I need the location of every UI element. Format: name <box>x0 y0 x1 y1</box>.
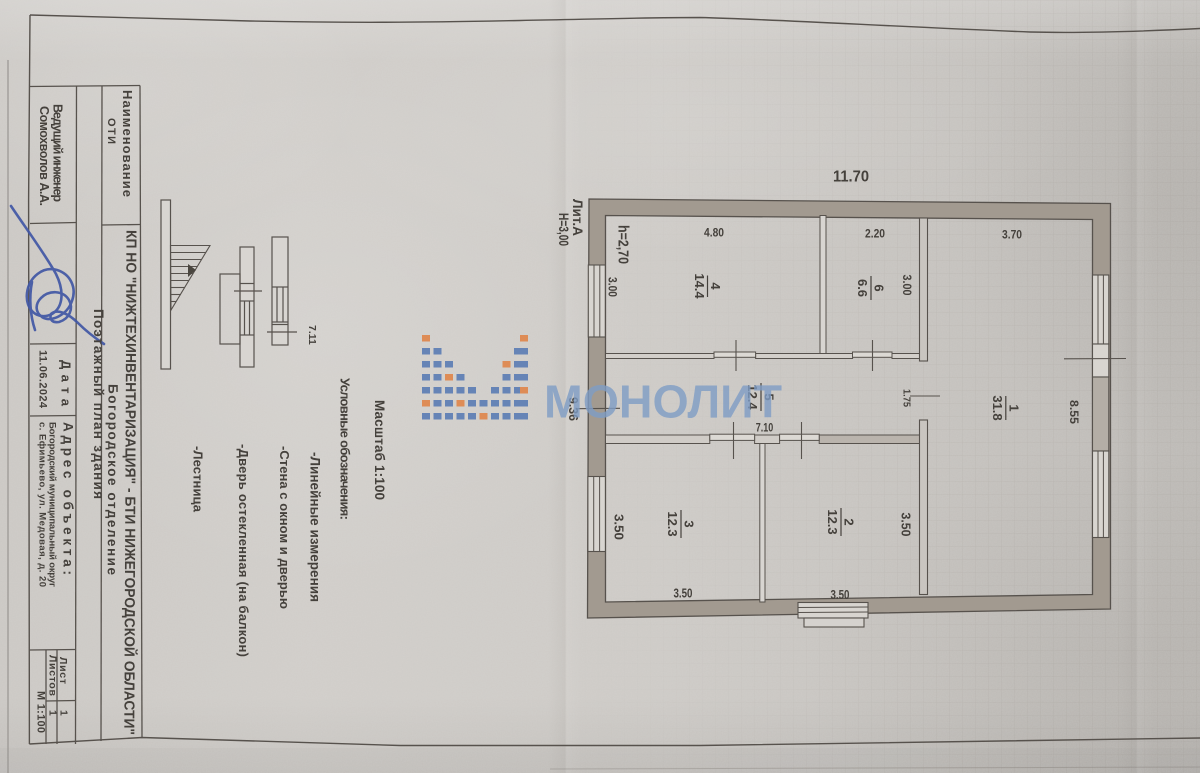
svg-text:КП НО "НИЖТЕХИНВЕНТАРИЗАЦИЯ" -: КП НО "НИЖТЕХИНВЕНТАРИЗАЦИЯ" - БТИ НИЖЕГ… <box>120 230 140 735</box>
svg-text:12.3: 12.3 <box>825 509 840 534</box>
svg-text:3.50: 3.50 <box>674 587 693 601</box>
svg-text:3.50: 3.50 <box>899 513 913 537</box>
svg-text:3.70: 3.70 <box>1002 228 1022 242</box>
svg-text:Сомохволов А.А.: Сомохволов А.А. <box>37 106 51 206</box>
svg-text:3: 3 <box>682 520 697 527</box>
svg-text:1: 1 <box>47 710 59 716</box>
svg-text:11.06.2024: 11.06.2024 <box>37 350 49 409</box>
svg-text:-Стена с окном и дверью: -Стена с окном и дверью <box>277 446 292 609</box>
svg-text:Ведущий инженер: Ведущий инженер <box>51 104 65 202</box>
svg-text:Листов: Листов <box>47 655 59 697</box>
svg-text:h=2,70: h=2,70 <box>615 225 632 264</box>
svg-text:3.00: 3.00 <box>900 275 914 296</box>
svg-text:7.11: 7.11 <box>306 325 318 345</box>
svg-text:11.70: 11.70 <box>833 169 869 186</box>
svg-text:4: 4 <box>708 282 723 290</box>
svg-text:с. Ефимьево, ул. Медовая, д. 2: с. Ефимьево, ул. Медовая, д. 20 <box>37 422 48 587</box>
svg-text:2: 2 <box>842 518 857 525</box>
svg-text:2.20: 2.20 <box>865 227 885 241</box>
svg-text:М 1:100: М 1:100 <box>35 691 47 733</box>
svg-text:ОТИ: ОТИ <box>105 118 117 144</box>
svg-text:8.55: 8.55 <box>1067 400 1081 424</box>
svg-text:6.6: 6.6 <box>855 279 870 297</box>
svg-text:Условные обозначения:: Условные обозначения: <box>338 378 353 520</box>
svg-text:-Дверь остекленная (на балкон): -Дверь остекленная (на балкон) <box>236 444 251 657</box>
svg-text:4.80: 4.80 <box>704 226 724 240</box>
svg-text:Масштаб 1:100: Масштаб 1:100 <box>372 400 387 500</box>
svg-text:6: 6 <box>872 284 887 291</box>
svg-text:Поэтажный план здания: Поэтажный план здания <box>91 309 106 499</box>
svg-text:Наименование: Наименование <box>120 90 135 197</box>
svg-text:3.00: 3.00 <box>606 277 620 297</box>
svg-text:МОНОЛИТ: МОНОЛИТ <box>544 376 782 428</box>
svg-text:Н=3,00: Н=3,00 <box>556 213 572 246</box>
svg-text:3.50: 3.50 <box>831 588 850 602</box>
svg-text:-Линейные измерения: -Линейные измерения <box>308 452 323 602</box>
svg-text:1.75: 1.75 <box>901 389 912 407</box>
svg-text:1: 1 <box>1006 404 1021 411</box>
svg-text:3.50: 3.50 <box>612 514 626 540</box>
svg-text:31.8: 31.8 <box>990 395 1005 420</box>
svg-text:12.3: 12.3 <box>665 511 680 536</box>
svg-text:-Лестница: -Лестница <box>191 446 206 513</box>
svg-text:14.4: 14.4 <box>692 273 707 299</box>
